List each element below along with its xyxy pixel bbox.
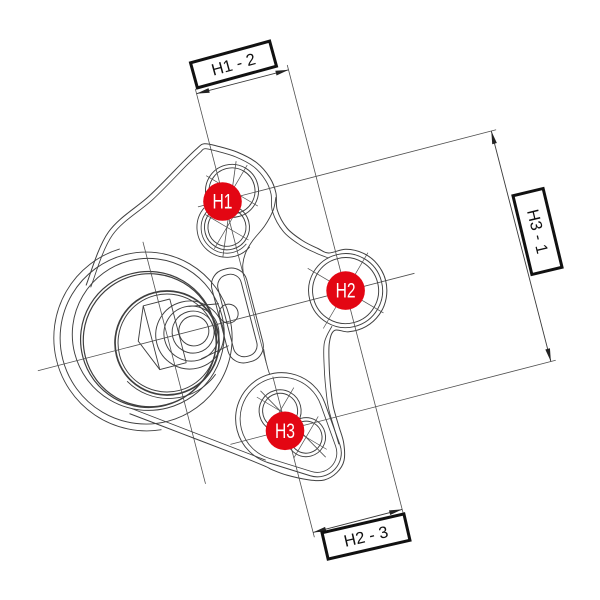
svg-text:H2: H2 [336, 280, 356, 303]
svg-text:H3: H3 [275, 420, 295, 443]
svg-text:H1: H1 [213, 191, 233, 214]
